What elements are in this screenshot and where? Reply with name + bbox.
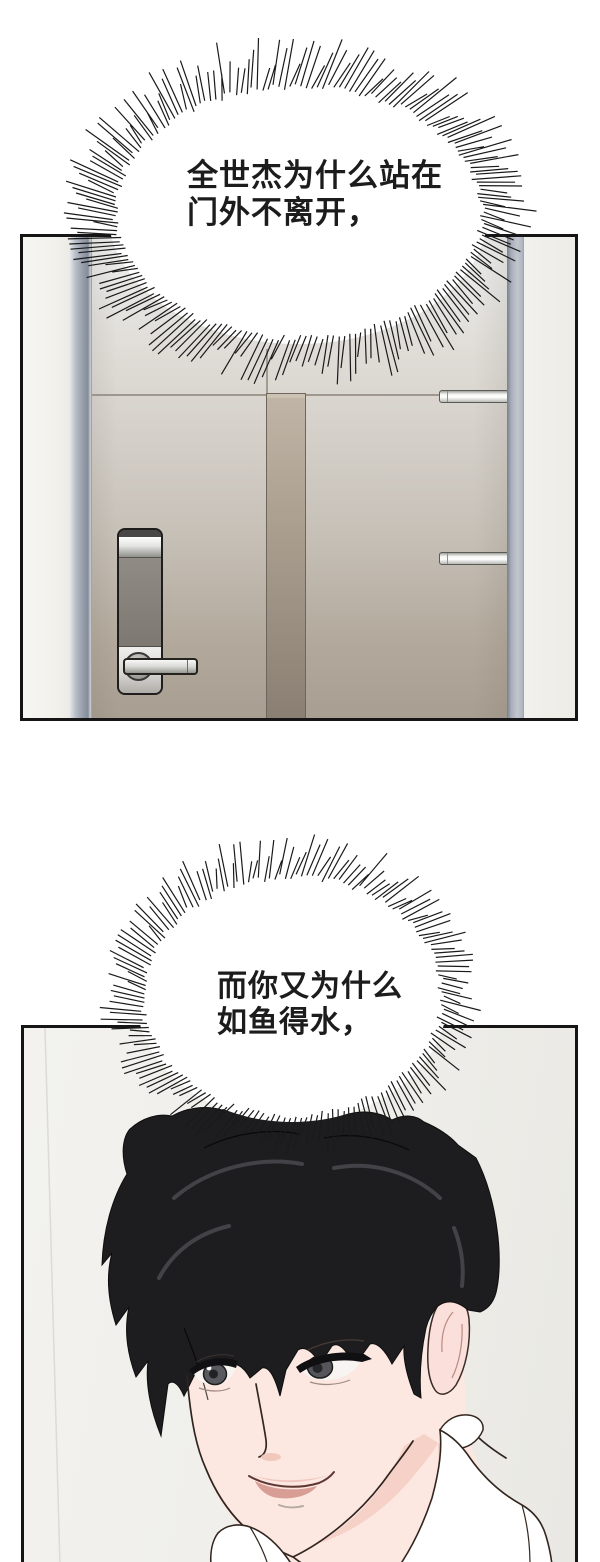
wall-corner-line [45,1028,60,1562]
bubble-2-line-1: 而你又为什么 [217,969,403,1005]
character-panel: 微笑 [21,1025,578,1562]
door-stile-top-line [266,349,268,394]
door-scene-panel [20,234,578,721]
door-frame-right [507,237,524,718]
door-lever-handle [123,658,198,675]
lock-keypad [119,558,161,647]
comic-page: 微笑 全世杰为什么站在 门外不离开， 而你又为什么 如鱼得水， [0,0,600,1562]
bubble-2-line-2: 如鱼得水， [217,1005,403,1041]
door-frame-left [70,237,92,718]
bubble-1-line-2: 门外不离开， [187,195,443,232]
man-portrait [24,1028,575,1562]
hallway-wall-right [524,237,575,718]
bubble-1-text: 全世杰为什么站在 门外不离开， [187,158,443,232]
lock-top-cap [119,530,161,537]
hallway-wall-left [23,237,70,718]
left-pupil [209,1370,218,1379]
lock-metal-band [119,537,161,558]
nostril-shading [261,1453,281,1461]
bubble-2-text: 而你又为什么 如鱼得水， [217,969,403,1041]
bubble-1-line-1: 全世杰为什么站在 [187,158,443,195]
door-stile [266,393,306,718]
